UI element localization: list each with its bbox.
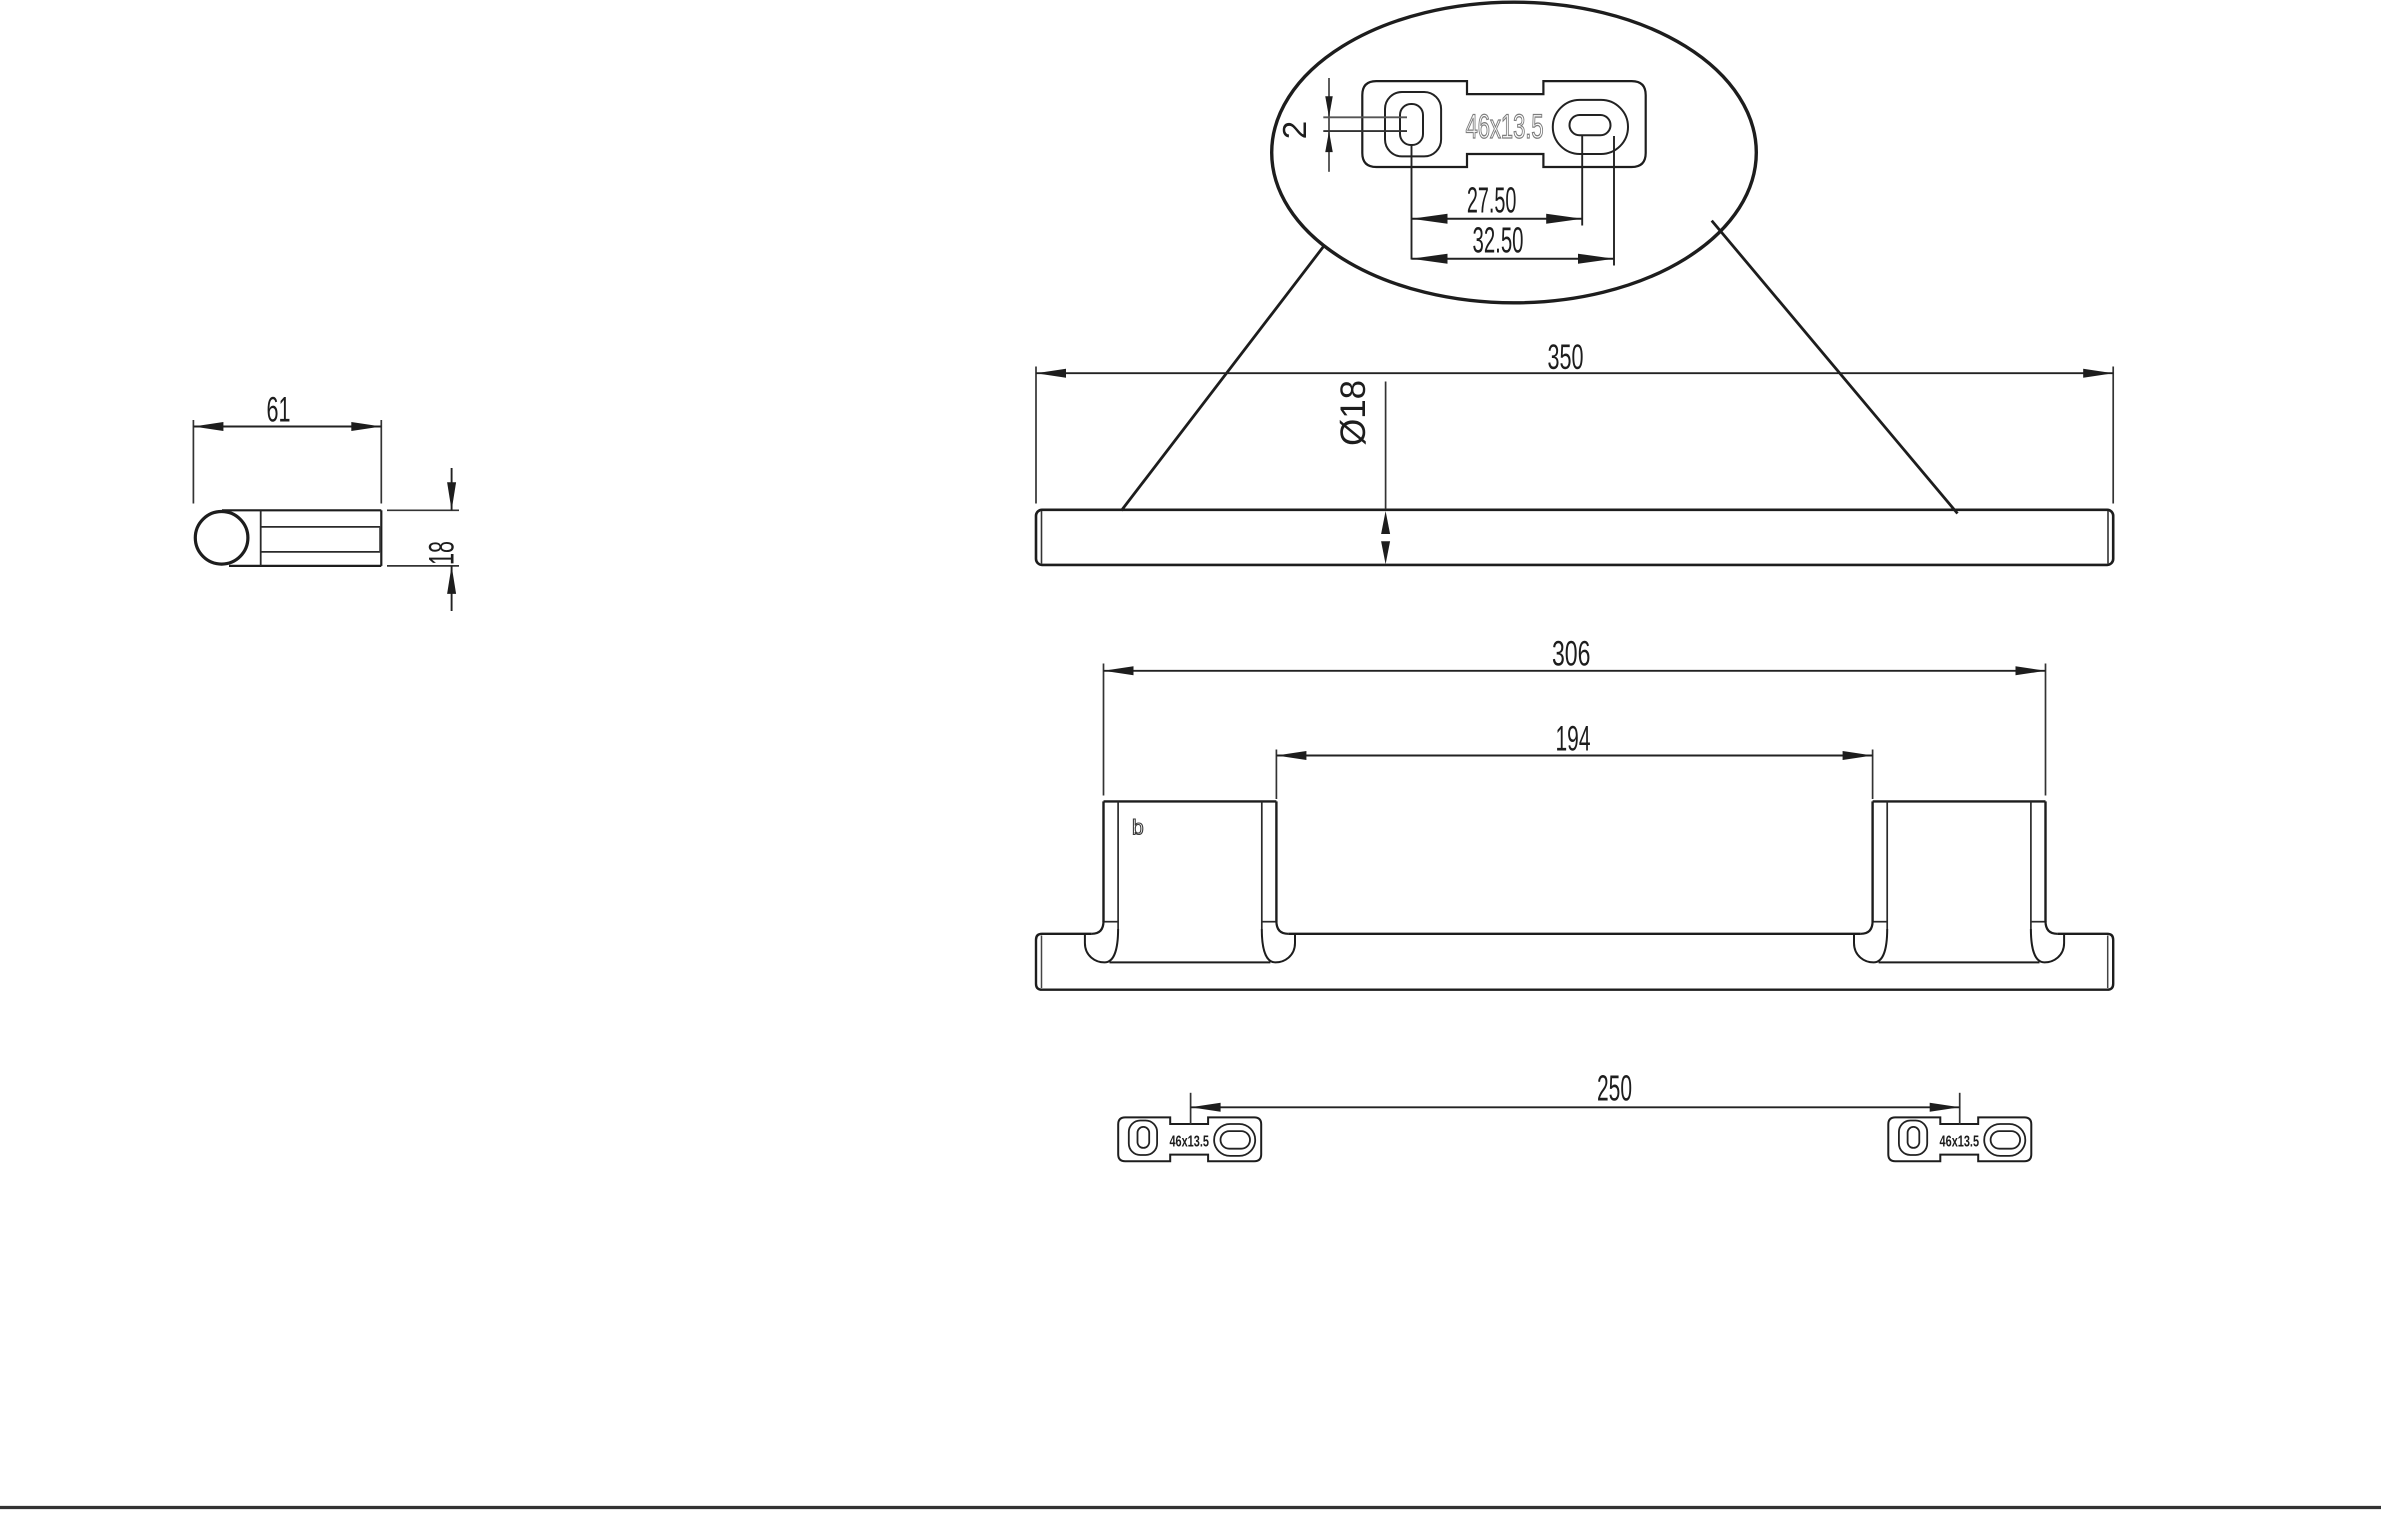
svg-text:194: 194 [1556, 720, 1591, 759]
svg-text:b: b [1132, 817, 1144, 840]
svg-text:18: 18 [423, 541, 462, 565]
svg-text:250: 250 [1597, 1068, 1632, 1109]
svg-text:Ø18: Ø18 [1334, 380, 1373, 446]
svg-text:2: 2 [1276, 121, 1313, 139]
svg-text:350: 350 [1548, 338, 1584, 377]
svg-text:46x13.5: 46x13.5 [1169, 1133, 1209, 1150]
svg-text:32.50: 32.50 [1473, 219, 1524, 260]
svg-text:61: 61 [267, 391, 291, 430]
svg-text:46x13.5: 46x13.5 [1940, 1133, 1980, 1150]
svg-text:46x13.5: 46x13.5 [1466, 108, 1544, 146]
svg-text:306: 306 [1552, 635, 1591, 674]
svg-text:27.50: 27.50 [1467, 179, 1517, 220]
